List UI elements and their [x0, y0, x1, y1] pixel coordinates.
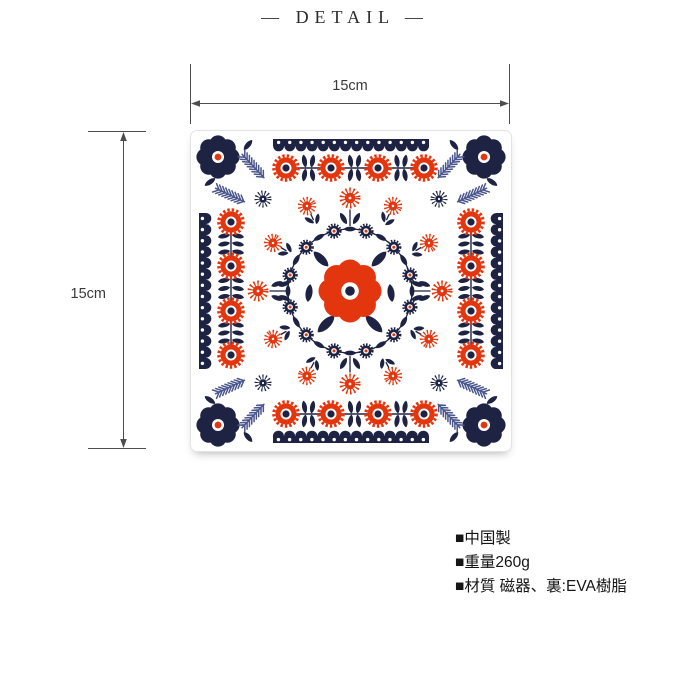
flower-row-top — [274, 154, 436, 182]
flower-column-right — [458, 210, 485, 367]
flower-column-left — [218, 210, 245, 367]
height-dimension-label: 15cm — [40, 286, 106, 302]
tile-pattern-svg — [191, 131, 511, 451]
product-specs: ■中国製 ■重量260g ■材質 磁器、裏:EVA樹脂 — [455, 527, 627, 599]
spec-line-origin: ■中国製 — [455, 527, 627, 551]
spec-line-weight: ■重量260g — [455, 551, 627, 575]
product-detail-page: — DETAIL — 15cm 15cm — [0, 0, 690, 690]
spray-west — [250, 280, 291, 303]
spray-south — [338, 356, 362, 392]
flower-row-bottom — [274, 400, 436, 428]
section-title: — DETAIL — — [0, 7, 690, 28]
width-dimension-label: 15cm — [190, 78, 510, 94]
spray-north — [338, 190, 362, 226]
product-tile-image — [190, 130, 512, 452]
center-flower — [319, 260, 382, 323]
spray-east — [410, 280, 449, 303]
spec-line-material: ■材質 磁器、裏:EVA樹脂 — [455, 575, 627, 599]
